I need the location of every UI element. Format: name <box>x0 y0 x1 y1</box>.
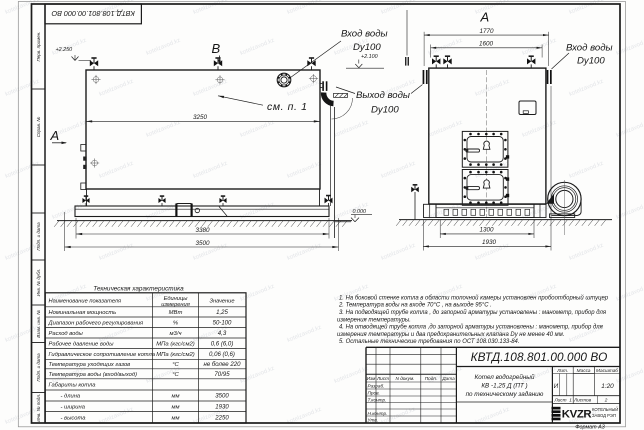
svg-text:1:20: 1:20 <box>601 383 614 390</box>
svg-text:Вход воды: Вход воды <box>341 28 388 39</box>
svg-text:КВТД.108.801.00.000 ВО: КВТД.108.801.00.000 ВО <box>51 9 135 18</box>
svg-text:%: % <box>173 320 178 326</box>
svg-text:Н.контр.: Н.контр. <box>368 411 388 416</box>
svg-text:Диапазон рабочего регулировани: Диапазон рабочего регулирования <box>48 320 144 326</box>
svg-text:Пров.: Пров. <box>368 391 380 396</box>
svg-text:Наименование показателя: Наименование показателя <box>49 299 122 305</box>
svg-text:3. На подводящей трубе котла: 3. На подводящей трубе котла , до запорн… <box>339 309 607 316</box>
svg-text:70/95: 70/95 <box>214 372 230 378</box>
svg-text:3380: 3380 <box>195 227 210 234</box>
svg-text:Вход воды: Вход воды <box>566 43 613 54</box>
svg-text:3250: 3250 <box>193 114 208 121</box>
svg-text:КВ -1,25 Д (ПТ ): КВ -1,25 Д (ПТ ) <box>481 382 527 389</box>
svg-text:Номинальная мощность: Номинальная мощность <box>49 310 117 316</box>
svg-text:Утв.: Утв. <box>368 418 379 423</box>
svg-text:0.000: 0.000 <box>353 209 367 215</box>
svg-text:м3/ч: м3/ч <box>170 331 182 337</box>
svg-text:Лист: Лист <box>376 376 389 381</box>
svg-text:Гидравлическое сопротивление к: Гидравлическое сопротивление котла <box>49 352 156 358</box>
svg-text:Листов: Листов <box>573 398 592 403</box>
svg-text:Dy100: Dy100 <box>577 56 605 67</box>
svg-text:Взам. инв. №: Взам. инв. № <box>36 310 41 338</box>
svg-text:Масса: Масса <box>577 368 591 373</box>
svg-text:°С: °С <box>172 362 179 368</box>
svg-text:мм: мм <box>171 404 179 410</box>
svg-text:не более 220: не более 220 <box>204 362 242 368</box>
svg-text:Разраб.: Разраб. <box>368 384 385 389</box>
svg-text:измерения температуры.: измерения температуры. <box>337 317 411 323</box>
svg-text:- высота: - высота <box>61 415 87 421</box>
svg-text:3500: 3500 <box>195 240 210 247</box>
svg-text:1930: 1930 <box>482 239 497 246</box>
svg-text:Температура воды (вход/выход): Температура воды (вход/выход) <box>49 372 138 378</box>
svg-text:Дата: Дата <box>441 376 455 381</box>
svg-text:Техническая характеристика: Техническая характеристика <box>93 285 184 292</box>
svg-text:KVZR: KVZR <box>562 408 592 420</box>
svg-text:0,06 (0,6): 0,06 (0,6) <box>209 352 235 358</box>
svg-text:Габариты котла: Габариты котла <box>49 382 97 388</box>
svg-text:ЗАВОД РЭП: ЗАВОД РЭП <box>592 413 616 418</box>
svg-text:Котел водогрейный: Котел водогрейный <box>475 373 535 381</box>
svg-text:1300: 1300 <box>479 227 494 234</box>
svg-text:МВт: МВт <box>169 310 183 316</box>
svg-text:Температура уходящих газов: Температура уходящих газов <box>49 362 131 368</box>
svg-text:Формат А3: Формат А3 <box>575 424 605 430</box>
svg-text:Масштаб: Масштаб <box>596 368 618 373</box>
svg-text:И: И <box>554 383 559 390</box>
svg-text:Подп. и дата: Подп. и дата <box>36 353 41 382</box>
svg-text:Dy100: Dy100 <box>353 42 381 53</box>
svg-text:В: В <box>212 41 221 56</box>
svg-text:Подп. и дата: Подп. и дата <box>36 222 41 251</box>
svg-text:5. Остальные технические треб: 5. Остальные технические требования по О… <box>339 339 519 345</box>
svg-text:А: А <box>480 10 490 25</box>
svg-text:Единицы: Единицы <box>164 296 189 302</box>
svg-text:1770: 1770 <box>479 28 494 35</box>
svg-text:1,25: 1,25 <box>216 310 228 316</box>
svg-text:- ширина: - ширина <box>61 404 86 410</box>
svg-text:измерения: измерения <box>161 302 189 308</box>
svg-text:1930: 1930 <box>215 404 229 410</box>
svg-text:4,3: 4,3 <box>218 331 227 337</box>
svg-text:мм: мм <box>171 394 179 400</box>
svg-text:4. На отводящей трубе котла ,: 4. На отводящей трубе котла ,до запорной… <box>339 324 604 331</box>
svg-text:Изм: Изм <box>367 376 376 381</box>
svg-text:Лит.: Лит. <box>556 368 568 373</box>
svg-text:Выход воды: Выход воды <box>356 90 410 101</box>
svg-text:Dy100: Dy100 <box>371 105 399 116</box>
svg-text:Инв. № дубл.: Инв. № дубл. <box>36 269 41 297</box>
svg-text:КОТЕЛЬНЫЙ: КОТЕЛЬНЫЙ <box>592 407 618 412</box>
svg-text:- длина: - длина <box>61 394 81 400</box>
svg-text:измерения температуры и два пр: измерения температуры и два предохраните… <box>337 332 564 338</box>
svg-text:см. п. 1: см. п. 1 <box>267 101 308 113</box>
svg-text:1. На боковой стенке котла в: 1. На боковой стенке котла в области топ… <box>339 294 609 301</box>
svg-text:Справ. №: Справ. № <box>36 117 41 138</box>
svg-text:2: 2 <box>604 398 608 403</box>
svg-text:2. Температура воды на входе: 2. Температура воды на входе 70°С , на в… <box>338 303 492 309</box>
svg-text:0,6 (6,0): 0,6 (6,0) <box>211 341 234 347</box>
svg-text:50-100: 50-100 <box>213 320 232 326</box>
svg-text:мм: мм <box>171 415 179 421</box>
svg-text:МПа (кгс/см2): МПа (кгс/см2) <box>156 352 195 358</box>
svg-text:2250: 2250 <box>214 415 229 421</box>
svg-text:Рабочее давление воды: Рабочее давление воды <box>49 341 115 347</box>
svg-text:Инв. № подл.: Инв. № подл. <box>36 394 41 422</box>
svg-text:Расход воды: Расход воды <box>49 331 84 337</box>
svg-text:1600: 1600 <box>479 41 494 48</box>
svg-text:Т.контр.: Т.контр. <box>368 397 387 402</box>
svg-text:А: А <box>50 128 60 143</box>
svg-text:3500: 3500 <box>215 394 229 400</box>
svg-text:1: 1 <box>569 398 572 403</box>
svg-text:МПа (кгс/см2): МПа (кгс/см2) <box>156 341 195 347</box>
svg-text:Лист: Лист <box>553 398 566 403</box>
svg-text:Перв. примен.: Перв. примен. <box>36 32 41 62</box>
svg-text:+2.100: +2.100 <box>361 54 378 60</box>
svg-text:КВТД.108.801.00.000 ВО: КВТД.108.801.00.000 ВО <box>471 350 608 364</box>
svg-text:N докум.: N докум. <box>396 376 415 381</box>
svg-text:°С: °С <box>172 372 179 378</box>
svg-text:Значение: Значение <box>210 299 235 305</box>
svg-text:+2.250: +2.250 <box>56 47 73 53</box>
svg-text:по техническому заданию: по техническому заданию <box>466 390 544 398</box>
svg-text:Подп.: Подп. <box>425 376 437 381</box>
